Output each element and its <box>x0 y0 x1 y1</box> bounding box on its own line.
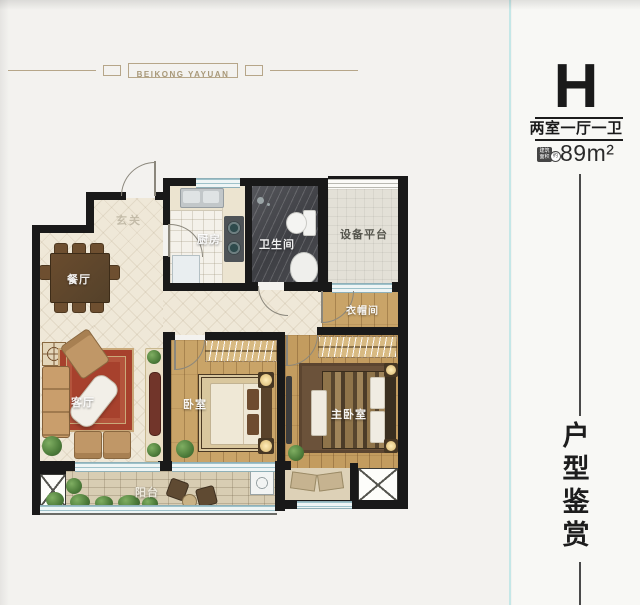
tv-unit-bar <box>149 372 161 436</box>
vertical-title-char: 赏 <box>512 519 640 552</box>
panel-vertical-title: 户 型 鉴 赏 <box>512 420 640 552</box>
ornament-line-left <box>8 70 96 71</box>
brand-text: BEIKONG YAYUAN <box>137 70 230 79</box>
equipment-platform-label: 设备平台 <box>340 226 388 242</box>
nightstand-lamp <box>384 439 398 453</box>
kitchen-appliance <box>172 255 200 284</box>
living-label: 客厅 <box>71 394 95 410</box>
wall <box>240 178 328 186</box>
master-tv-bar <box>286 376 292 444</box>
ornament-box-left <box>103 65 121 76</box>
plant <box>288 445 304 461</box>
wall <box>317 327 398 335</box>
area-value: 89m² <box>560 140 614 167</box>
master-pillow <box>370 377 385 409</box>
sink-basin-left <box>183 191 200 203</box>
unit-layout: 两室一厅一卫 <box>512 120 640 138</box>
balcony-plant <box>66 478 82 494</box>
plant <box>42 436 62 456</box>
wall <box>163 186 170 225</box>
vertical-title-char: 型 <box>512 453 640 486</box>
wall <box>283 461 291 470</box>
entrance-label: 玄关 <box>116 212 142 228</box>
wall <box>398 176 408 509</box>
wall <box>284 282 325 291</box>
armchair-bottom-right <box>103 431 131 459</box>
nightstand-lamp <box>384 363 398 377</box>
area-badge-text: 建筑面积 <box>539 148 551 160</box>
bay-cushion <box>290 471 317 491</box>
living-balcony-window <box>75 462 160 472</box>
wall <box>277 332 285 463</box>
panel-vertical-line-bottom <box>579 562 581 605</box>
flue-shaft <box>358 468 398 502</box>
wall <box>32 225 94 233</box>
master-headboard <box>385 373 396 447</box>
cloakroom-label: 衣帽间 <box>346 302 379 317</box>
ornament-box-right <box>245 65 263 76</box>
entrance-door-arc <box>121 162 155 196</box>
vertical-title-char: 户 <box>512 420 640 453</box>
toilet-bowl <box>286 212 307 234</box>
panel-vertical-line-top <box>579 174 581 416</box>
bathroom-label: 卫生间 <box>259 236 295 252</box>
wall <box>163 283 252 291</box>
balcony-label: 阳台 <box>135 484 159 500</box>
shower-head-icon <box>257 197 264 204</box>
wall <box>318 186 328 292</box>
wall <box>32 225 40 515</box>
wall <box>163 332 171 463</box>
sofa <box>42 366 70 438</box>
bedroom-pillow <box>247 389 259 410</box>
floorplan-page: { "header": { "brand": "BEIKONG YAYUAN" … <box>0 0 640 605</box>
master-bedroom-label: 主卧室 <box>331 406 367 422</box>
area-badge-circle-text: 约 <box>553 153 558 159</box>
plant <box>147 443 161 457</box>
master-wardrobe <box>318 336 397 358</box>
kitchen-label: 厨房 <box>197 231 221 247</box>
balcony-outer-line <box>40 513 277 515</box>
unit-letter: H <box>512 56 640 118</box>
bedroom-label: 卧室 <box>183 396 207 412</box>
bay-cushion <box>317 471 344 491</box>
wall <box>205 332 283 340</box>
stove-burner-bottom <box>227 241 241 255</box>
nightstand-lamp <box>258 438 274 454</box>
bathroom-basin <box>290 252 318 284</box>
bay-window <box>297 501 352 509</box>
vertical-title-char: 鉴 <box>512 486 640 519</box>
nightstand-lamp <box>258 372 274 388</box>
wall <box>158 461 172 471</box>
wall <box>245 186 252 291</box>
bed-end-bench <box>311 390 327 436</box>
platform-window-top <box>328 179 398 189</box>
ornament-line-right <box>270 70 358 71</box>
washing-machine <box>250 471 274 495</box>
wall <box>163 178 196 186</box>
plant <box>176 440 194 458</box>
brand-box: BEIKONG YAYUAN <box>128 63 238 78</box>
wall <box>38 461 75 471</box>
bedroom-balcony-window <box>172 462 275 472</box>
armchair-bottom-left <box>74 431 102 459</box>
bedroom-headboard <box>261 381 272 445</box>
panel-divider-line <box>509 0 511 605</box>
bedroom-pillow <box>247 414 259 435</box>
master-pillow <box>370 411 385 443</box>
dining-label: 餐厅 <box>67 271 91 287</box>
panel-rule-top <box>535 117 623 119</box>
kitchen-window <box>196 178 240 188</box>
plant <box>147 350 161 364</box>
sink-basin-right <box>203 191 219 203</box>
stove-burner-top <box>227 221 241 235</box>
bedroom-wardrobe <box>205 340 277 362</box>
corridor-floor <box>163 290 322 335</box>
